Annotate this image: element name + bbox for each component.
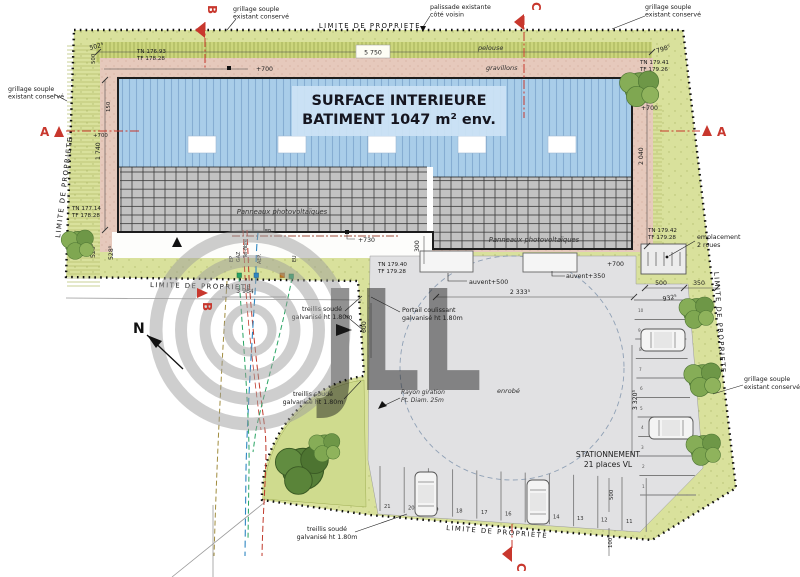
svg-text:11: 11 xyxy=(626,519,633,525)
svg-text:20: 20 xyxy=(408,506,415,512)
pv-label-right: Panneaux photovoltaïques xyxy=(489,236,580,244)
dim-300: 300 xyxy=(414,240,421,252)
dim-500r: 500 xyxy=(655,280,667,287)
tn-topleft: TN 176.93 xyxy=(136,49,166,55)
palissade-2: côté voisin xyxy=(430,11,464,19)
dim-2333: 2 333⁵ xyxy=(510,289,531,296)
level-700-right: +700 xyxy=(641,105,658,112)
gravillons-label: gravillons xyxy=(486,64,518,72)
grillage-left-1: grillage souple xyxy=(8,86,54,93)
dim-500v: 500 xyxy=(91,53,97,64)
dim-100: 100 xyxy=(608,537,614,548)
dim-2040: 2 040 xyxy=(638,147,645,165)
grillage-top-1: grillage souple xyxy=(233,6,279,13)
enrobe-label: enrobé xyxy=(497,387,520,395)
treillis-bottom-1: treillis soudé xyxy=(307,525,347,533)
pv-label-left: Panneaux photovoltaïques xyxy=(237,208,328,216)
canopy-350 xyxy=(523,253,577,272)
auvent-350-label: auvent+350 xyxy=(566,273,605,280)
grillage-right-1: grillage souple xyxy=(744,376,790,383)
level-730: +730 xyxy=(358,237,375,244)
limite-top: LIMITE DE PROPRIETE xyxy=(319,22,421,30)
section-b-top: B xyxy=(205,5,219,14)
site-plan: SURFACE INTERIEURE BATIMENT 1047 m² env.… xyxy=(0,0,800,577)
level-700-top: +700 xyxy=(256,66,273,73)
level-700-yard: +700 xyxy=(607,261,624,268)
dim-dot xyxy=(227,66,231,70)
grillage-topright-1: grillage souple xyxy=(645,4,691,11)
svg-text:9: 9 xyxy=(638,328,641,333)
tn-midleft: TN 177.14 xyxy=(71,206,101,212)
treillis-bottom-2: galvanisé ht 1.80m xyxy=(297,533,358,541)
emplacement-2: 2 roues xyxy=(697,242,720,249)
svg-text:4: 4 xyxy=(641,425,644,430)
svg-text:18: 18 xyxy=(456,509,463,515)
section-b-mid: B xyxy=(200,302,214,311)
dim-350: 350 xyxy=(693,280,705,287)
tn-midright: TN 179.42 xyxy=(647,228,677,234)
svg-text:10: 10 xyxy=(638,308,644,313)
dim-5750: 5 750 xyxy=(364,50,382,57)
dim-500b: 500 xyxy=(609,489,615,500)
section-c-bottom: C xyxy=(514,563,528,572)
svg-text:16: 16 xyxy=(505,512,512,518)
dim-3320: 3 320⁵ xyxy=(632,389,639,410)
section-a-right: A xyxy=(717,125,727,139)
stationnement-2: 21 places VL xyxy=(584,460,633,469)
tn-topright: TN 179.41 xyxy=(639,60,669,66)
surface-line2: BATIMENT 1047 m² env. xyxy=(302,112,496,128)
stationnement-1: STATIONNEMENT xyxy=(576,450,641,459)
svg-text:14: 14 xyxy=(553,515,560,521)
svg-text:7: 7 xyxy=(639,367,642,372)
surface-line1: SURFACE INTERIEURE xyxy=(311,93,486,109)
tf-topleft: TF 178.28 xyxy=(136,56,165,62)
section-c-top: C xyxy=(529,2,543,11)
grillage-left-2: existant conservé xyxy=(8,93,64,101)
svg-text:3: 3 xyxy=(641,445,644,450)
bike-parking xyxy=(641,244,686,274)
grillage-topright-2: existant conservé xyxy=(645,11,701,19)
site-plan-drawing: SURFACE INTERIEURE BATIMENT 1047 m² env.… xyxy=(0,0,800,577)
dim-528: 528⁵ xyxy=(108,245,115,260)
level-700-left: +700 xyxy=(93,133,108,139)
svg-text:5: 5 xyxy=(640,406,643,411)
pelouse-label: pelouse xyxy=(477,44,503,52)
dim-1740: 1 740 xyxy=(95,142,102,160)
grillage-top-2: existant conservé xyxy=(233,13,289,21)
palissade-1: palissade existante xyxy=(430,4,491,11)
svg-text:21: 21 xyxy=(384,504,391,510)
tf-midleft: TF 178.28 xyxy=(71,213,100,219)
dim-150: 150 xyxy=(106,101,112,112)
section-a-left: A xyxy=(40,125,50,139)
tf-midright: TF 179.28 xyxy=(647,235,676,241)
svg-text:2: 2 xyxy=(642,464,645,469)
north-label: N xyxy=(133,321,145,337)
svg-text:13: 13 xyxy=(577,516,584,522)
pv-array-left xyxy=(120,167,427,232)
svg-text:6: 6 xyxy=(640,386,643,391)
grillage-right-2: existant conservé xyxy=(744,383,800,391)
svg-text:12: 12 xyxy=(601,518,608,524)
svg-text:1: 1 xyxy=(642,484,645,489)
svg-text:17: 17 xyxy=(481,510,488,516)
watermark-text: JLL xyxy=(316,261,482,424)
emplacement-1: emplacement xyxy=(697,234,741,241)
